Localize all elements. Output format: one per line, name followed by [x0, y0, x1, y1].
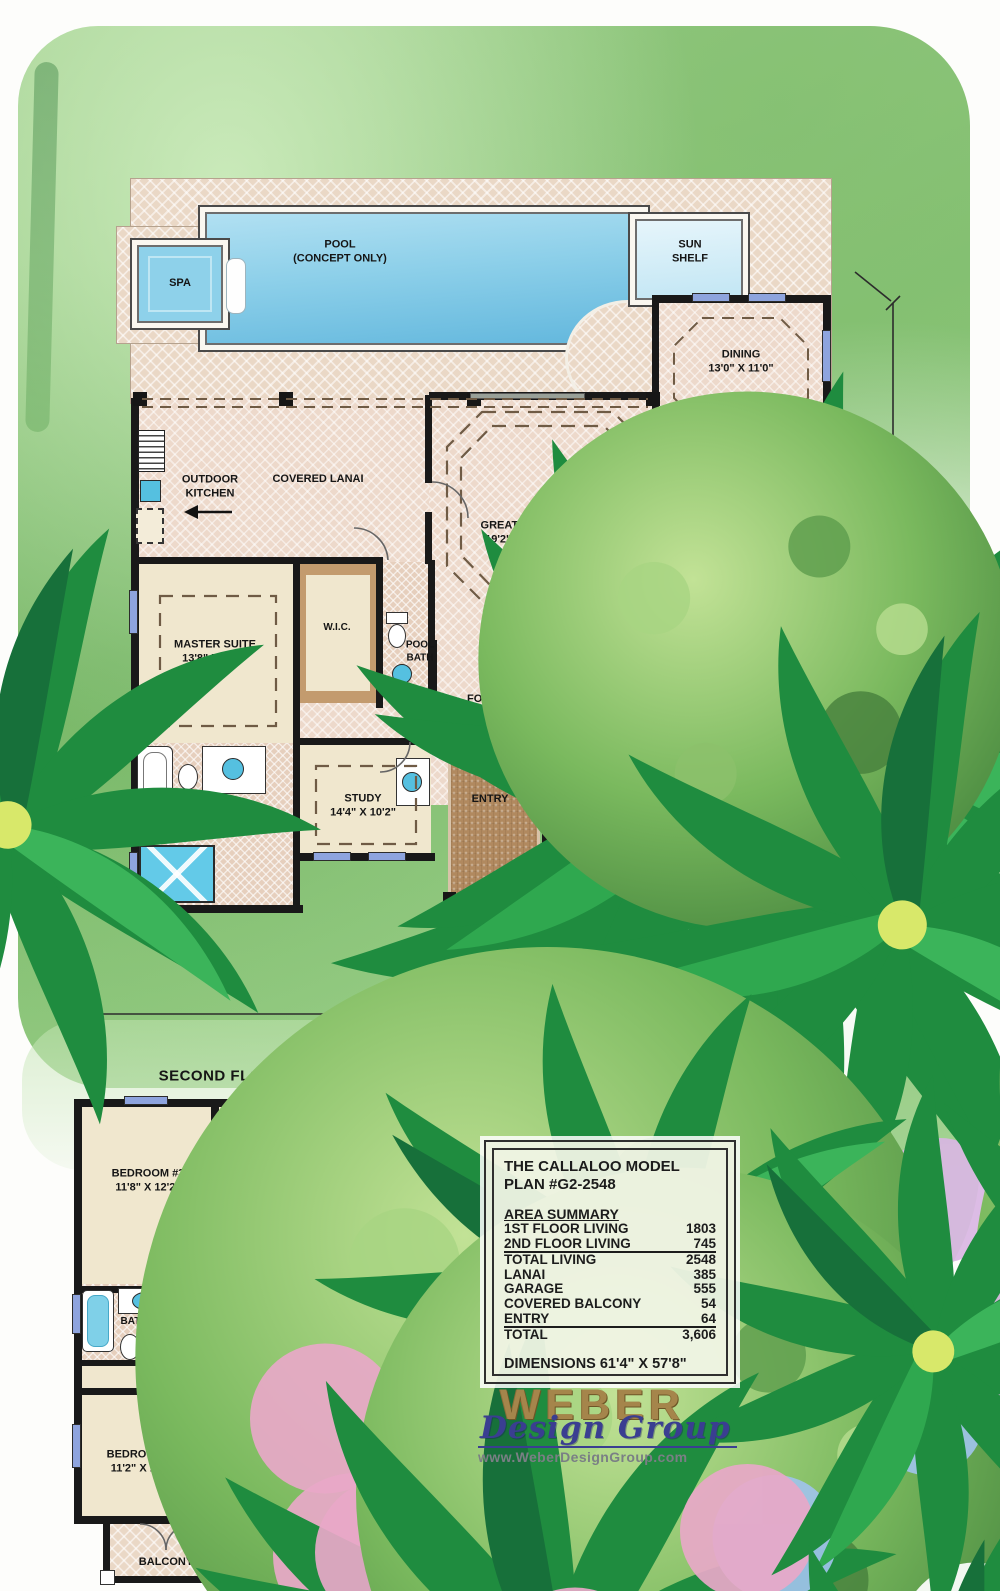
balcony-post	[100, 1570, 115, 1585]
window	[368, 852, 406, 861]
window	[256, 1096, 300, 1105]
covered-lanai-label: COVERED LANAI	[272, 473, 363, 487]
balcony-post	[217, 1570, 232, 1585]
wall-kitchen-bottom	[652, 588, 831, 595]
stairs-down	[215, 1356, 305, 1520]
bedroom2-label: BEDROOM #2	[107, 1448, 180, 1460]
sink-icon	[132, 1292, 158, 1310]
logo-url: www.WeberDesignGroup.com	[478, 1449, 746, 1465]
wall-masterbath-bottom	[131, 905, 303, 913]
balcony-floor	[106, 1522, 226, 1580]
toilet-icon	[120, 1334, 140, 1360]
area-row: 1ST FLOOR LIVING1803	[504, 1222, 716, 1237]
wall-poolbath-left	[376, 560, 383, 708]
bedroom2-dims: 11'2" X 11'4"	[107, 1462, 180, 1476]
info-box: THE CALLALOO MODEL PLAN #G2-2548 AREA SU…	[484, 1140, 736, 1384]
area-row: COVERED BALCONY54	[504, 1297, 716, 1312]
wall2-step	[300, 1353, 356, 1361]
wall-garage-right	[790, 686, 798, 952]
master-suite-dims: 13'8" X 15'0"	[165, 652, 265, 666]
wall-study-top	[293, 738, 435, 745]
area-row: TOTAL3,606	[504, 1328, 716, 1343]
window	[124, 1096, 168, 1105]
shower-icon	[282, 1308, 346, 1352]
kitchen-label: KITCHEN	[717, 534, 766, 546]
wall2-right-upper	[348, 1099, 356, 1361]
sink-icon	[222, 758, 244, 780]
wall2-right-lower	[300, 1353, 308, 1524]
wall2-b3-bottom-b	[182, 1286, 219, 1293]
area-row: LANAI385	[504, 1268, 716, 1283]
area-row: 2ND FLOOR LIVING745	[504, 1237, 716, 1254]
floor-plan-canvas: POOL(CONCEPT ONLY) SUN SHELF SPA	[0, 0, 1000, 1591]
bedroom3-dims: 11'8" X 12'2"	[112, 1181, 185, 1195]
fridge-icon	[710, 562, 768, 585]
lanai-column	[646, 392, 660, 406]
wall-dining-top	[652, 295, 830, 303]
sun-shelf-label: SUN SHELF	[664, 238, 716, 266]
dining-label: DINING	[722, 348, 761, 360]
weber-logo: WEBER Design Group www.WeberDesignGroup.…	[478, 1386, 746, 1465]
height-dimension: 57'8"	[886, 683, 902, 716]
study-dims: 14'4" X 10'2"	[330, 806, 396, 820]
palm-tree-icon	[938, 1348, 1000, 1591]
entry-column	[443, 892, 456, 905]
study-label: STUDY	[344, 792, 381, 804]
window	[129, 700, 138, 740]
garage-label: 2 CAR GARAGE	[626, 872, 710, 884]
bathtub-icon	[82, 1290, 114, 1352]
bedroom3-label: BEDROOM #3	[112, 1167, 185, 1179]
window	[72, 1294, 81, 1334]
bathtub-icon	[137, 746, 173, 812]
shower-icon	[139, 845, 215, 903]
wic2-label: W.I.C.	[230, 1311, 257, 1324]
logo-script-text: Design Group	[478, 1410, 737, 1448]
utility-sink-icon	[716, 658, 728, 668]
window	[748, 293, 786, 302]
dimensions-line: DIMENSIONS 61'4" X 57'8"	[504, 1356, 716, 1372]
garage-dims: 20'8" X 21'8"	[626, 886, 710, 900]
window	[129, 852, 138, 892]
area-summary-title: AREA SUMMARY	[504, 1206, 716, 1222]
wall2-b2-top-a	[74, 1388, 164, 1395]
sink-icon	[402, 772, 422, 792]
window	[72, 1424, 81, 1468]
great-room-label: GREAT ROOM	[481, 519, 556, 531]
entry-label: ENTRY	[472, 793, 509, 807]
window	[692, 293, 730, 302]
outdoor-sink-icon	[140, 480, 161, 502]
wic-label: W.I.C.	[323, 622, 350, 635]
wall-utility-top	[705, 595, 811, 601]
sink-icon	[392, 664, 412, 684]
grill-icon	[138, 430, 165, 472]
lanai-column	[279, 392, 293, 406]
dryer-icon	[752, 654, 790, 688]
utility-label: UTILITY	[741, 641, 783, 655]
garage-apron	[602, 950, 762, 980]
window	[129, 590, 138, 634]
toilet-tank-icon	[278, 1262, 292, 1290]
area-row: GARAGE555	[504, 1282, 716, 1297]
range-icon	[799, 494, 824, 542]
wall-utility-right	[805, 595, 811, 695]
bedroom4-dims: 11'0" X 13'2"	[246, 1181, 319, 1195]
plan-number: PLAN #G2-2548	[504, 1176, 716, 1194]
first-floor-label: FIRST FLOOR	[650, 991, 756, 1010]
spa-spillway	[226, 258, 246, 314]
master-suite-label: MASTER SUITE13'8" X 15'0"	[165, 638, 265, 666]
dining-dims: 13'0" X 11'0"	[708, 362, 773, 376]
spa-label: SPA	[169, 277, 191, 291]
entry-porch	[448, 733, 540, 911]
second-floor-label: SECOND FLOOR	[159, 1068, 286, 1087]
wall-mudhall	[595, 595, 601, 690]
area-row: ENTRY64	[504, 1312, 716, 1329]
wall-lanai-bottom	[131, 557, 383, 564]
pool-bath-label: POOL BATH	[398, 640, 442, 665]
bath2-label: BATH #2	[118, 1316, 164, 1329]
wall2-bath3-left	[270, 1258, 276, 1356]
copyright-text: ©COPYRIGHT 2011 WEBER DESIGN GROUP, INC.	[800, 700, 810, 956]
toilet-icon	[178, 764, 198, 790]
wall-lanai-greatroom-a	[425, 395, 432, 483]
entry-column	[524, 729, 537, 742]
wall-garage-bottom-left	[542, 944, 606, 952]
pool-sublabel: (CONCEPT ONLY)	[293, 252, 387, 266]
foyer-label: FOYER	[467, 693, 505, 707]
outdoor-kitchen-label: OUTDOOR KITCHEN	[162, 473, 258, 501]
stairs-up	[516, 664, 592, 716]
kitchen-dims: 13'0" X 13'6"	[708, 548, 774, 562]
great-room-dims: 19'2" X 21'2"	[481, 533, 556, 547]
up-label: UP	[551, 650, 565, 663]
outdoor-appliance-icon	[136, 508, 164, 544]
window	[243, 1514, 277, 1523]
bedroom4-label: BEDROOM #4	[246, 1167, 319, 1179]
window	[822, 330, 831, 382]
master-bath-label: MASTER BATH	[195, 815, 279, 829]
wall-garage-bottom-right	[758, 944, 798, 952]
wall2-divider	[211, 1099, 219, 1524]
toilet-tank-icon	[386, 612, 408, 624]
area-row: TOTAL LIVING2548	[504, 1253, 716, 1268]
sliding-door	[470, 393, 585, 399]
entry-column	[443, 729, 456, 742]
dn-label: DN	[194, 1377, 208, 1390]
window	[313, 852, 351, 861]
lanai-column	[133, 392, 147, 406]
toilet-icon	[292, 1266, 316, 1286]
wall-lanai-greatroom-b	[425, 512, 432, 564]
plan-title: THE CALLALOO MODEL	[504, 1158, 716, 1176]
pool-bath-floor	[378, 562, 434, 705]
garage-room	[545, 688, 795, 950]
wall-dining-left	[652, 295, 659, 467]
wall2-balcony-bottom	[103, 1576, 229, 1583]
pool-label: POOL	[324, 238, 355, 250]
bath3-label: BATH #3	[295, 1291, 341, 1304]
wall2-bath2-bottom	[74, 1360, 178, 1366]
balcony-label: BALCONY	[139, 1556, 193, 1570]
width-dimension: 61'4"	[473, 1024, 506, 1042]
flower-bed-icon	[488, 1475, 1000, 1591]
entry-column	[524, 892, 537, 905]
